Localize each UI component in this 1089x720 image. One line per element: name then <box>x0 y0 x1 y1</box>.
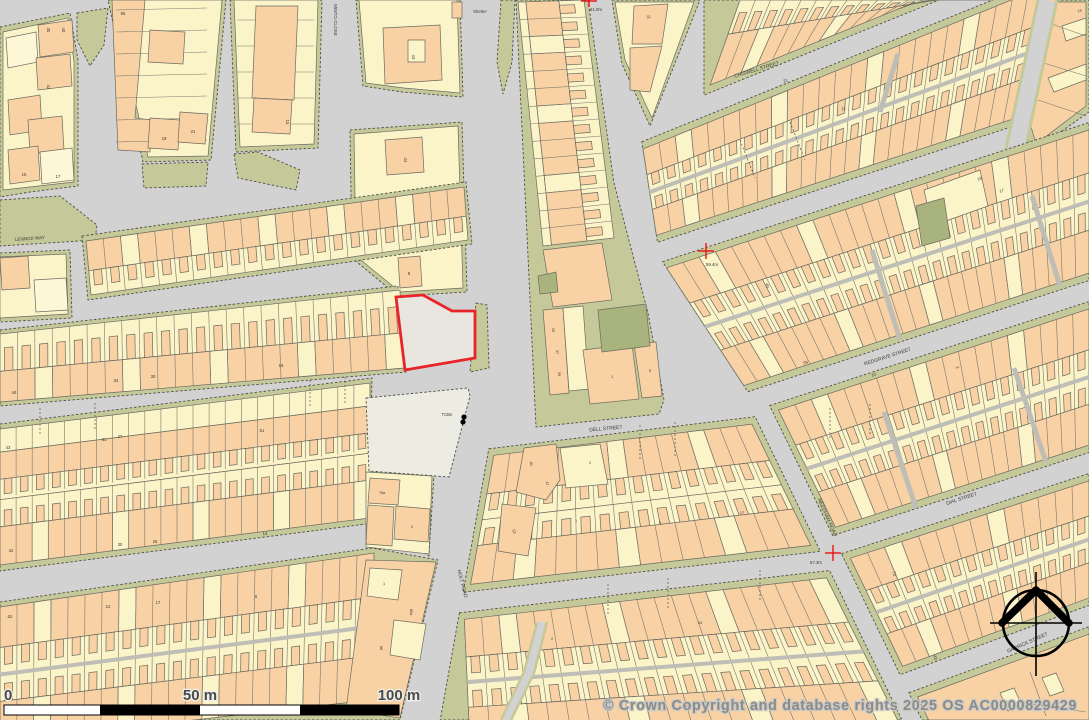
svg-text:30: 30 <box>46 28 51 33</box>
svg-text:100 m: 100 m <box>378 687 421 704</box>
svg-text:© Crown Copyright and database: © Crown Copyright and database rights 20… <box>603 698 1077 714</box>
svg-text:42: 42 <box>46 85 51 90</box>
svg-text:0: 0 <box>4 687 12 704</box>
svg-text:16: 16 <box>279 363 284 368</box>
svg-text:43: 43 <box>411 55 416 60</box>
svg-text:44: 44 <box>403 158 408 163</box>
svg-text:37: 37 <box>555 350 559 354</box>
svg-text:1: 1 <box>611 375 613 379</box>
svg-text:17: 17 <box>156 600 161 605</box>
svg-text:61.0m: 61.0m <box>590 7 603 12</box>
svg-text:12: 12 <box>106 604 111 609</box>
svg-text:5: 5 <box>649 369 651 373</box>
svg-text:17: 17 <box>740 511 744 515</box>
svg-text:2: 2 <box>589 461 591 465</box>
svg-text:9: 9 <box>659 521 661 525</box>
svg-text:31: 31 <box>102 437 107 442</box>
svg-text:51: 51 <box>260 428 265 433</box>
svg-text:2: 2 <box>411 525 413 529</box>
svg-text:1: 1 <box>383 582 385 586</box>
svg-text:43: 43 <box>6 445 11 450</box>
svg-text:14: 14 <box>263 531 268 536</box>
svg-text:27: 27 <box>118 434 123 439</box>
svg-text:40: 40 <box>61 28 66 33</box>
svg-text:Shelter: Shelter <box>473 9 487 14</box>
svg-text:55: 55 <box>121 11 126 16</box>
svg-text:26: 26 <box>153 539 158 544</box>
svg-text:59.4m: 59.4m <box>706 262 719 267</box>
svg-text:80a: 80a <box>409 609 413 616</box>
svg-text:34: 34 <box>114 378 119 383</box>
svg-text:30: 30 <box>151 374 156 379</box>
svg-text:30: 30 <box>118 542 123 547</box>
svg-text:50 m: 50 m <box>183 687 217 704</box>
svg-text:57.3m: 57.3m <box>810 560 823 565</box>
svg-text:TCBs: TCBs <box>442 412 452 417</box>
svg-text:35: 35 <box>551 328 555 332</box>
svg-text:MINTO CLOSE: MINTO CLOSE <box>333 4 338 36</box>
svg-text:2: 2 <box>551 637 553 641</box>
svg-text:15: 15 <box>22 172 27 177</box>
svg-text:42: 42 <box>9 548 14 553</box>
svg-text:88: 88 <box>379 646 383 650</box>
svg-text:21: 21 <box>191 129 196 134</box>
svg-text:17: 17 <box>56 174 61 179</box>
svg-text:15: 15 <box>285 120 290 125</box>
svg-text:34: 34 <box>698 621 702 625</box>
svg-text:76a: 76a <box>379 491 386 495</box>
svg-text:1: 1 <box>575 519 577 523</box>
svg-text:19: 19 <box>162 136 167 141</box>
svg-text:62: 62 <box>8 614 13 619</box>
svg-text:39: 39 <box>557 372 561 376</box>
svg-text:44: 44 <box>12 390 17 395</box>
